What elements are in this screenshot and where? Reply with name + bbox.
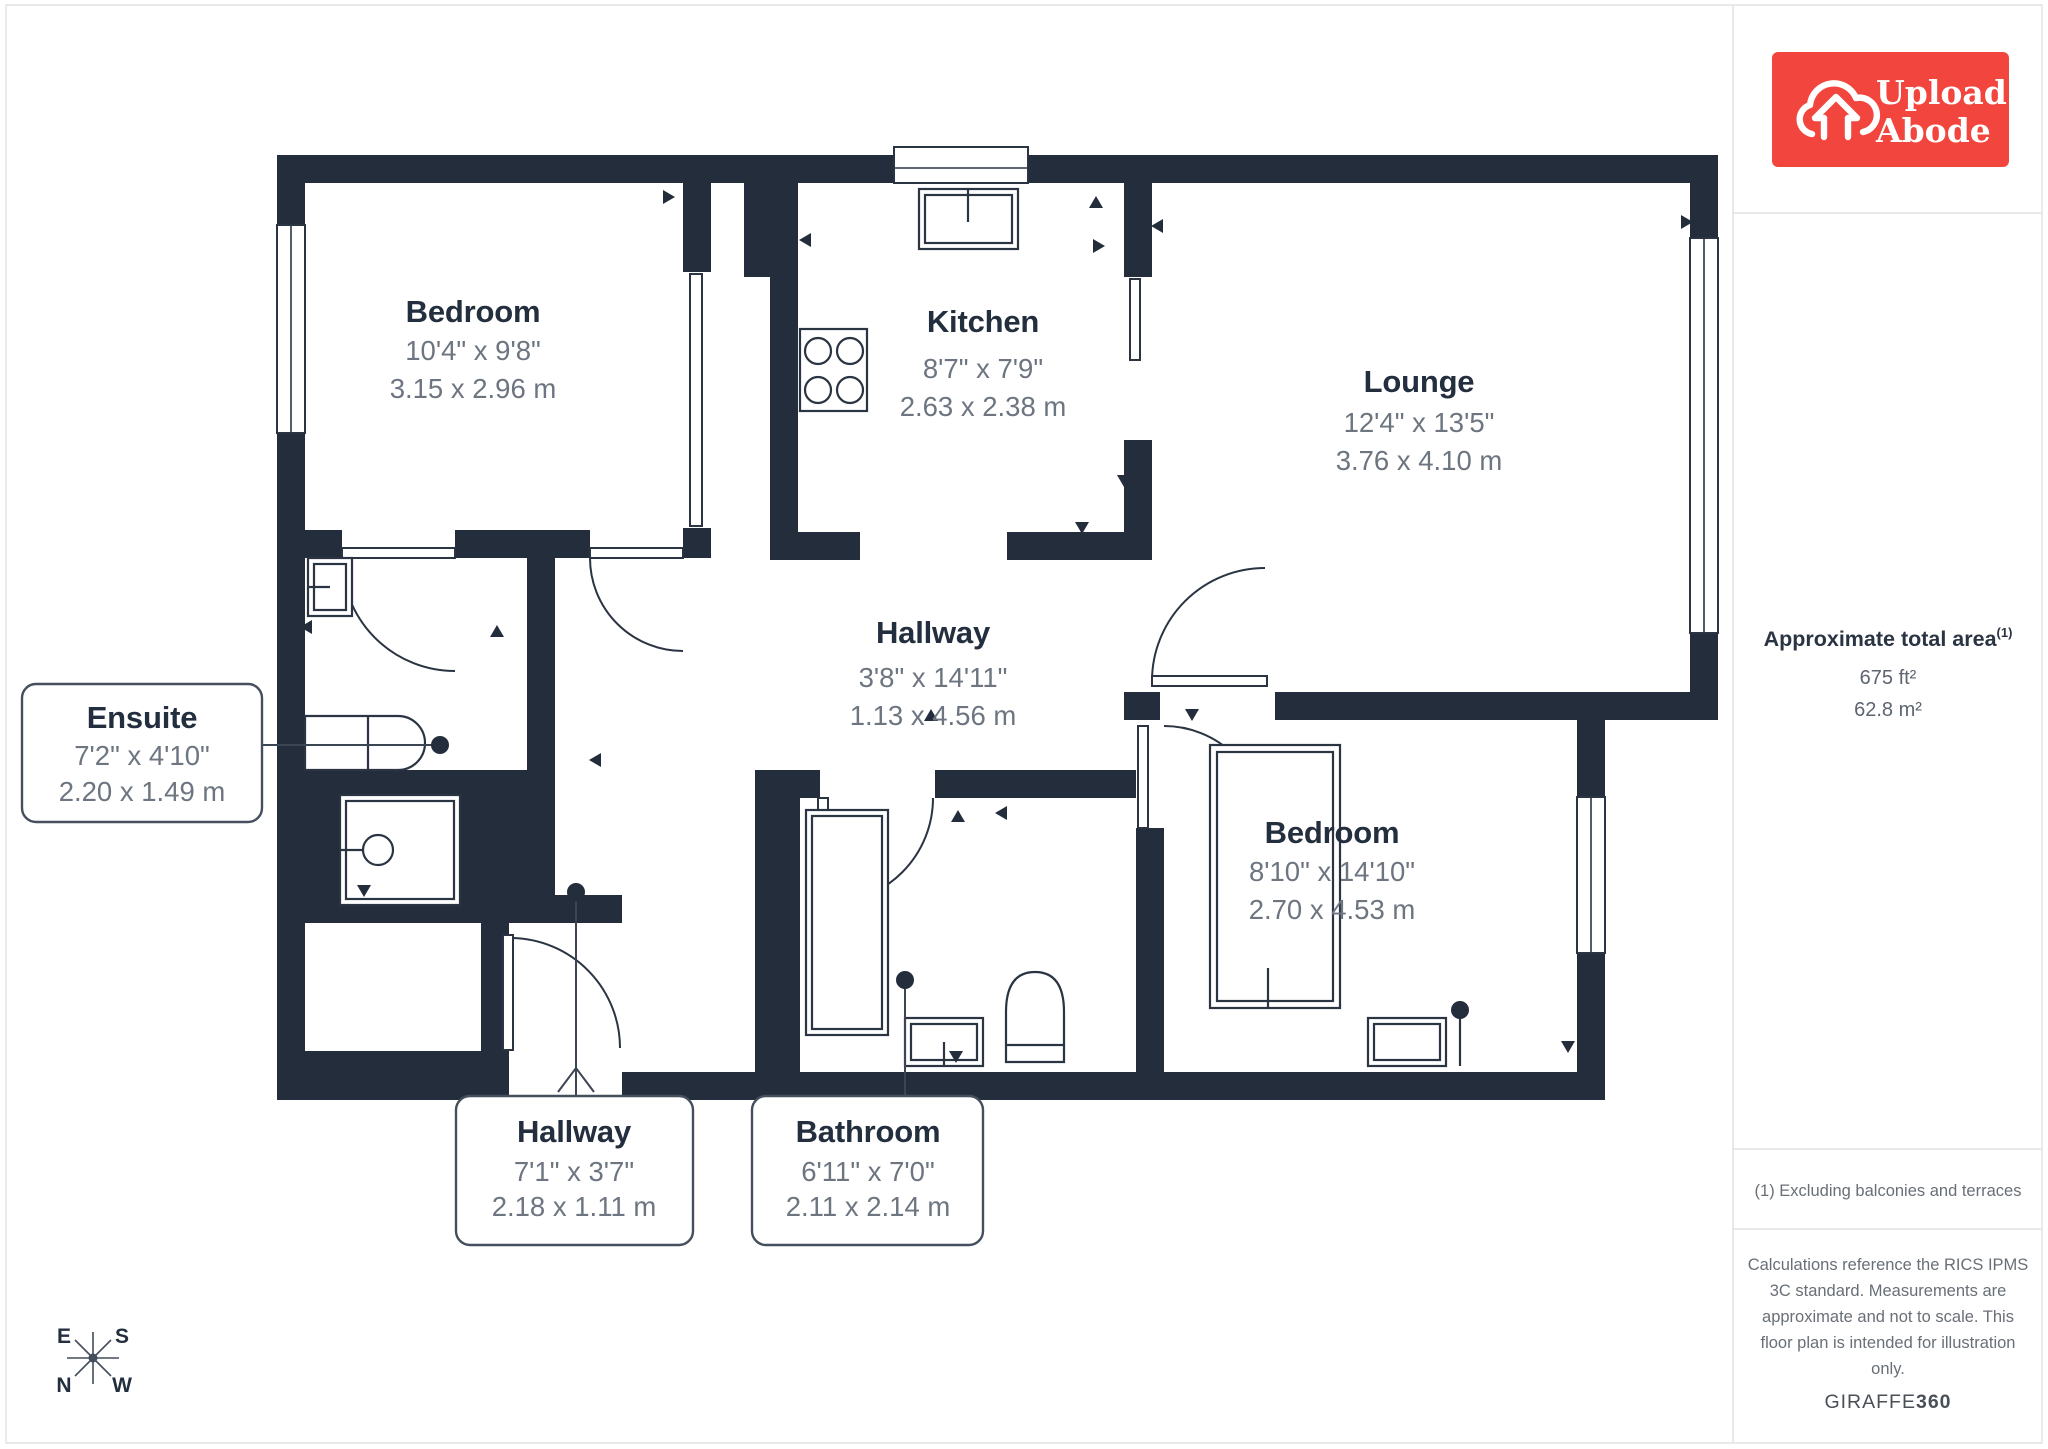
room-label-kitchen: Kitchen 8'7" x 7'9" 2.63 x 2.38 m	[900, 304, 1067, 422]
floorplan-canvas: Bedroom 10'4" x 9'8" 3.15 x 2.96 m Kitch…	[0, 0, 2048, 1449]
disclaimer-text: Calculations reference the RICS IPMS 3C …	[1748, 1256, 2029, 1378]
ensuite-imperial: 7'2" x 4'10"	[74, 740, 210, 771]
hallway2-metric: 2.18 x 1.11 m	[492, 1191, 657, 1222]
sliding-door-bedroom1	[690, 274, 702, 526]
compass-west: W	[112, 1374, 132, 1397]
kitchen-metric: 2.63 x 2.38 m	[900, 391, 1067, 422]
room-label-lounge: Lounge 12'4" x 13'5" 3.76 x 4.10 m	[1336, 364, 1503, 476]
ensuite-sink	[308, 558, 352, 616]
camera-dot-hallway	[567, 883, 585, 901]
bedroom1-metric: 3.15 x 2.96 m	[390, 373, 557, 404]
hallway2-imperial: 7'1" x 3'7"	[514, 1156, 634, 1187]
camera-dot-bedroom2	[1451, 1001, 1469, 1019]
room-label-hallway-main: Hallway 3'8" x 14'11" 1.13 x 4.56 m	[850, 615, 1017, 731]
svg-text:floor plan is intended for ill: floor plan is intended for illustration	[1761, 1334, 2016, 1352]
room-label-bedroom1: Bedroom 10'4" x 9'8" 3.15 x 2.96 m	[390, 294, 557, 404]
svg-text:3C standard. Measurements are: 3C standard. Measurements are	[1770, 1282, 2007, 1300]
window-bedroom2-right	[1577, 797, 1605, 953]
callout-hallway-entrance: Hallway 7'1" x 3'7" 2.18 x 1.11 m	[456, 1096, 693, 1245]
kitchen-hob	[800, 329, 867, 411]
compass-rose: E S N W	[56, 1325, 132, 1397]
camera-dot-ensuite	[431, 736, 449, 754]
footnote-text: (1) Excluding balconies and terraces	[1755, 1182, 2022, 1200]
ensuite-bathtub	[305, 716, 425, 770]
svg-text:only.: only.	[1871, 1360, 1905, 1378]
callout-bathroom: Bathroom 6'11" x 7'0" 2.11 x 2.14 m	[752, 1096, 983, 1245]
callout-ensuite: Ensuite 7'2" x 4'10" 2.20 x 1.49 m	[22, 684, 262, 822]
sliding-door-kitchen-lounge	[1130, 279, 1140, 360]
hallway-metric: 1.13 x 4.56 m	[850, 700, 1017, 731]
area-sqm: 62.8 m²	[1854, 699, 1922, 721]
lounge-imperial: 12'4" x 13'5"	[1344, 407, 1495, 438]
bathroom-imperial: 6'11" x 7'0"	[801, 1156, 935, 1187]
kitchen-name: Kitchen	[927, 304, 1039, 339]
room-label-bedroom2: Bedroom 8'10" x 14'10" 2.70 x 4.53 m	[1249, 815, 1416, 925]
door-bedroom1	[590, 548, 683, 651]
bathroom-metric: 2.11 x 2.14 m	[786, 1191, 951, 1222]
room-labels: Bedroom 10'4" x 9'8" 3.15 x 2.96 m Kitch…	[390, 294, 1503, 925]
sidebar: Upload Abode Approximate total area(1) 6…	[1733, 5, 2042, 1443]
ensuite-metric: 2.20 x 1.49 m	[59, 776, 226, 807]
bedroom2-metric: 2.70 x 4.53 m	[1249, 894, 1416, 925]
area-sqft: 675 ft²	[1860, 667, 1917, 689]
floorplan-page: Bedroom 10'4" x 9'8" 3.15 x 2.96 m Kitch…	[0, 0, 2048, 1449]
logo-text-line1: Upload	[1876, 73, 2007, 112]
lounge-name: Lounge	[1364, 364, 1475, 399]
total-area-section: Approximate total area(1) 675 ft² 62.8 m…	[1764, 625, 2013, 721]
compass-north: N	[56, 1374, 71, 1397]
kitchen-imperial: 8'7" x 7'9"	[923, 353, 1043, 384]
bedroom1-name: Bedroom	[406, 294, 541, 329]
compass-east: E	[57, 1325, 71, 1348]
door-ensuite	[342, 548, 455, 671]
bathroom-bathtub	[806, 810, 888, 1035]
bathroom-name: Bathroom	[796, 1114, 941, 1149]
door-lounge	[1152, 568, 1267, 686]
upload-abode-logo: Upload Abode	[1772, 52, 2009, 167]
area-footnote-marker: (1)	[1997, 625, 2013, 640]
giraffe360-brand: GIRAFFE360	[1824, 1391, 1951, 1413]
hallway2-name: Hallway	[517, 1114, 632, 1149]
kitchen-sink	[919, 189, 1018, 249]
camera-dot-bathroom	[896, 971, 914, 989]
bedroom2-imperial: 8'10" x 14'10"	[1249, 856, 1415, 887]
hallway-imperial: 3'8" x 14'11"	[859, 662, 1008, 693]
bedroom1-imperial: 10'4" x 9'8"	[405, 335, 541, 366]
ensuite-name: Ensuite	[87, 700, 198, 735]
area-title: Approximate total area	[1764, 627, 1998, 651]
svg-text:Approximate total area(1): Approximate total area(1)	[1764, 625, 2013, 651]
bedroom2-cabinet	[1368, 1012, 1460, 1066]
window-kitchen-top	[894, 147, 1028, 183]
lounge-metric: 3.76 x 4.10 m	[1336, 445, 1503, 476]
logo-text-line2: Abode	[1875, 111, 1991, 150]
svg-text:approximate and not to scale.: approximate and not to scale. This	[1762, 1308, 2014, 1326]
bathroom-sink	[905, 1018, 983, 1066]
hallway-name: Hallway	[876, 615, 991, 650]
bathroom-toilet	[1006, 972, 1064, 1062]
ensuite-shower	[340, 795, 460, 905]
bedroom2-name: Bedroom	[1265, 815, 1400, 850]
svg-text:Calculations reference the RIC: Calculations reference the RICS IPMS	[1748, 1256, 2029, 1274]
compass-south: S	[115, 1325, 129, 1348]
door-entrance	[503, 935, 620, 1050]
window-bedroom1-left	[277, 225, 305, 433]
window-lounge-right	[1690, 238, 1718, 633]
